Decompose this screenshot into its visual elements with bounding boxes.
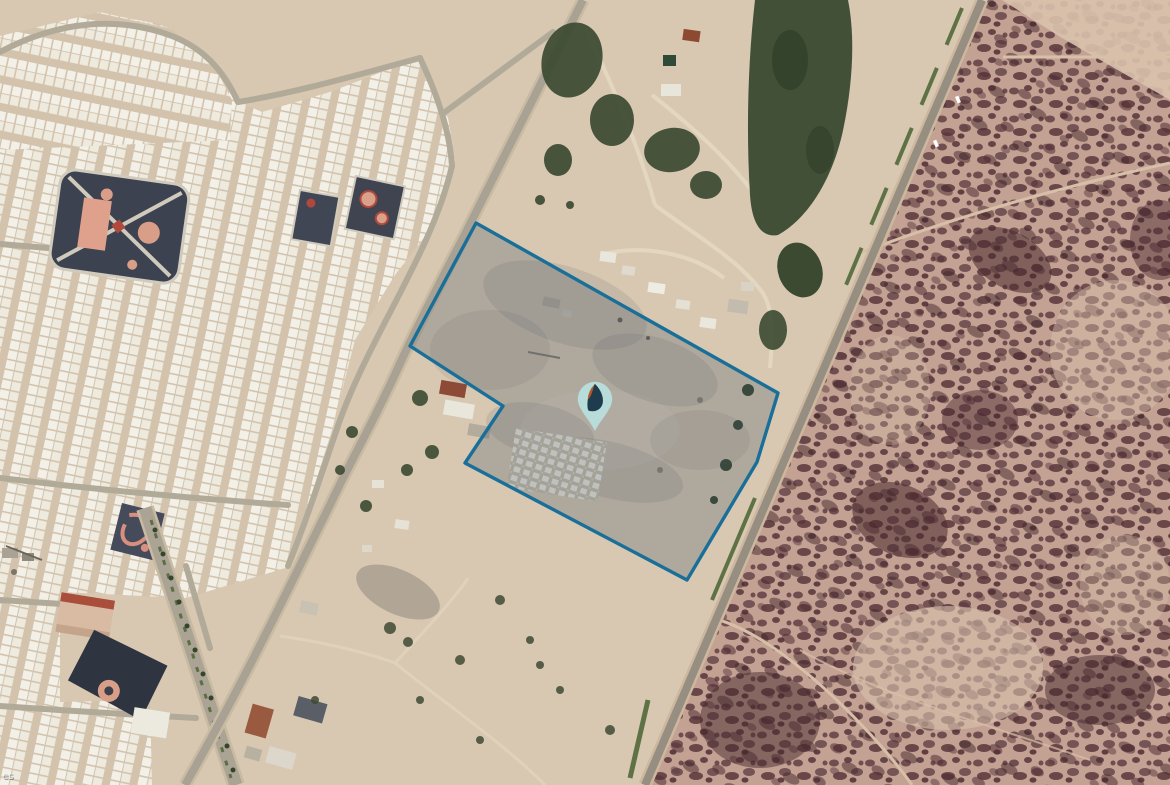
- park-small-2: [345, 176, 405, 239]
- map-canvas[interactable]: es es: [0, 0, 1170, 785]
- map-attribution: es: [2, 771, 13, 782]
- park-plaza-large: [48, 168, 191, 285]
- satellite-map-viewport[interactable]: es es: [0, 0, 1170, 785]
- park-small-1: [291, 190, 339, 246]
